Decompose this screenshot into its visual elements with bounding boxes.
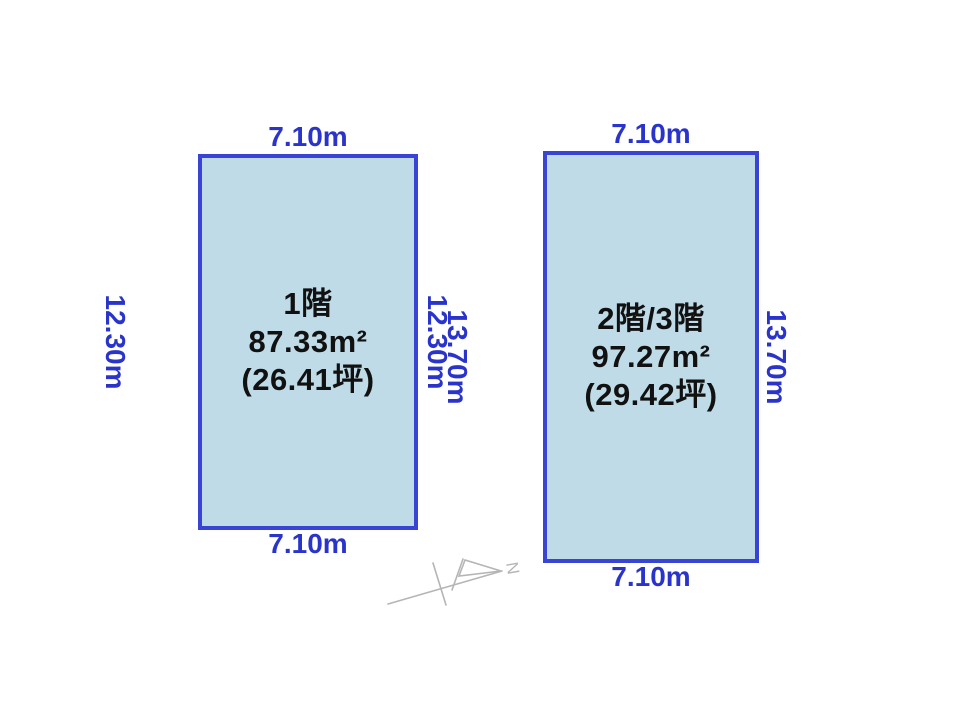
floor-title: 2階/3階 <box>584 300 717 338</box>
dimension-label-left: 13.70m <box>442 287 472 427</box>
dimension-label-left: 12.30m <box>100 272 130 412</box>
floor-title: 1階 <box>241 285 374 323</box>
floor-area-sqm: 87.33m² <box>241 323 374 361</box>
dimension-label-right: 13.70m <box>761 287 791 427</box>
floor-plan-rect-2f3f: 7.10m 7.10m 13.70m 13.70m 2階/3階 97.27m² … <box>543 151 759 563</box>
dimension-label-top: 7.10m <box>202 122 414 152</box>
floor-plan-rect-1f: 7.10m 7.10m 12.30m 12.30m 1階 87.33m² (26… <box>198 154 418 530</box>
north-arrow-icon: N <box>383 546 535 618</box>
dimension-label-top: 7.10m <box>547 119 755 149</box>
floor-info-1f: 1階 87.33m² (26.41坪) <box>241 285 374 399</box>
floor-area-tsubo: (26.41坪) <box>241 361 374 399</box>
dimension-label-bottom: 7.10m <box>547 562 755 592</box>
north-label: N <box>502 561 523 576</box>
floor-info-2f3f: 2階/3階 97.27m² (29.42坪) <box>584 300 717 414</box>
floor-plan-diagram: 7.10m 7.10m 12.30m 12.30m 1階 87.33m² (26… <box>0 0 960 720</box>
floor-area-tsubo: (29.42坪) <box>584 376 717 414</box>
floor-area-sqm: 97.27m² <box>584 338 717 376</box>
